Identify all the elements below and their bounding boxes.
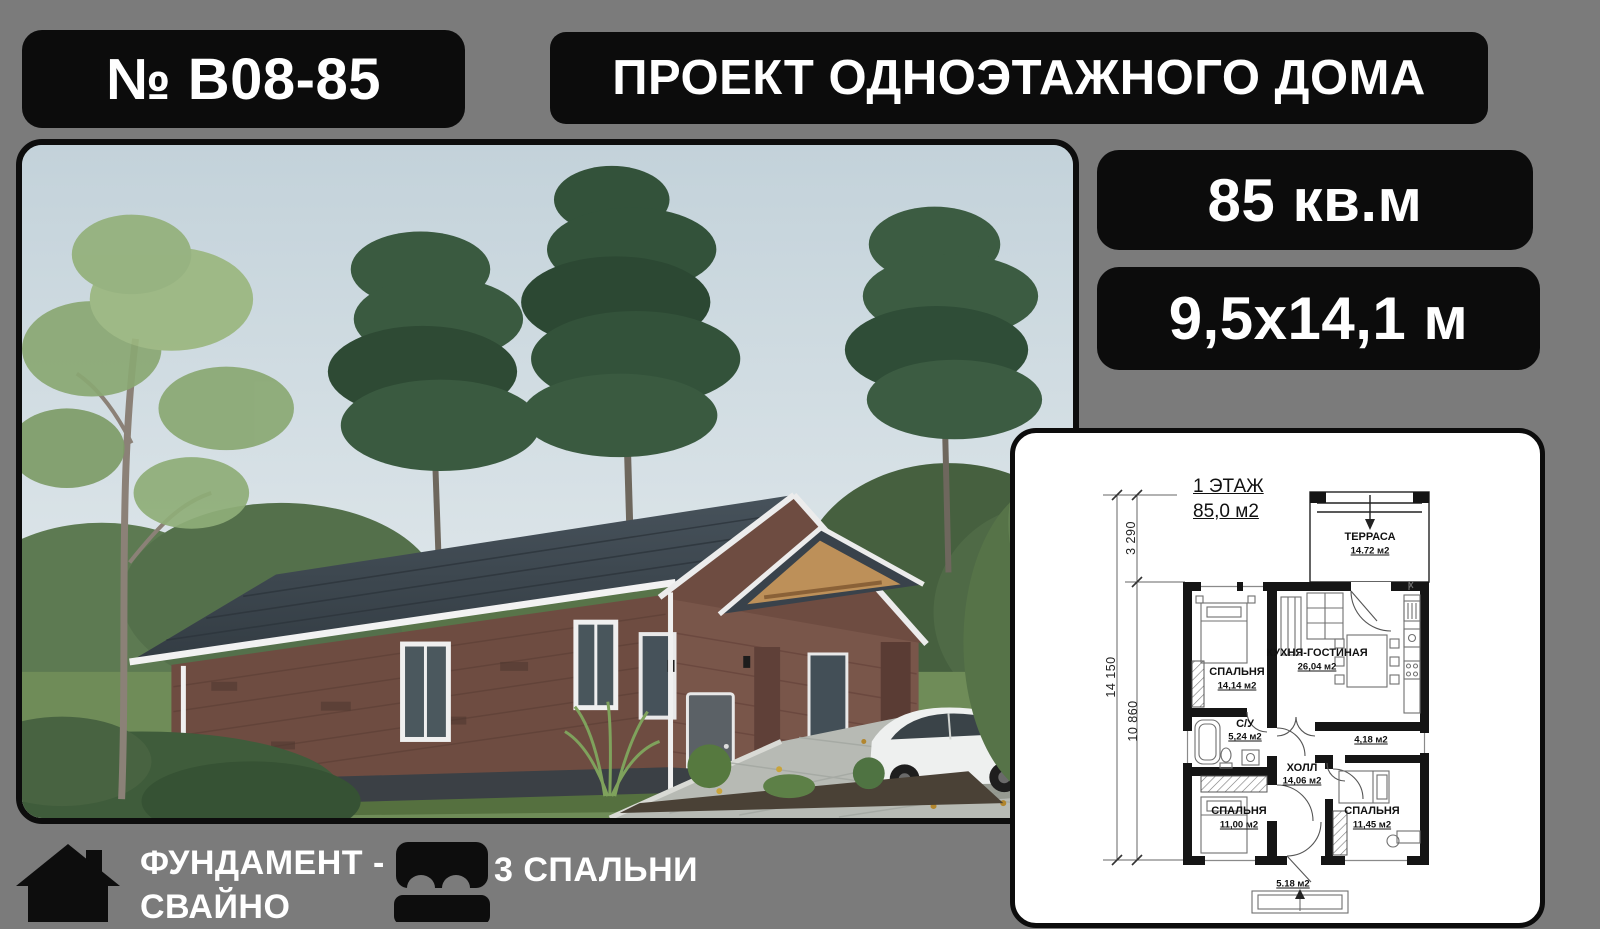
bed-icon	[394, 842, 494, 927]
room-bathroom-area: 5,24 м2	[1228, 732, 1261, 743]
dim-upper: 3 290	[1124, 521, 1138, 555]
house-icon	[16, 842, 122, 927]
dimensions-badge: 9,5x14,1 м	[1097, 267, 1540, 370]
bedrooms-feature: 3 СПАЛЬНИ	[494, 848, 698, 892]
room-bedroom3-name: СПАЛЬНЯ	[1344, 805, 1399, 817]
area-badge: 85 кв.м	[1097, 150, 1533, 250]
room-kitchen-name: КУХНЯ-ГОСТИНАЯ	[1266, 647, 1367, 659]
room-bedroom1-name: СПАЛЬНЯ	[1209, 666, 1264, 678]
poster-page: { "header": { "project_number": "№ B08-8…	[0, 0, 1600, 900]
room-bedroom2-area: 11,00 м2	[1220, 820, 1258, 831]
room-bedroom3-area: 11,45 м2	[1353, 820, 1391, 831]
room-hall-area: 14,06 м2	[1283, 776, 1322, 787]
plan-floor-label: 1 ЭТАЖ	[1193, 475, 1264, 500]
poster-title-badge: ПРОЕКТ ОДНОЭТАЖНОГО ДОМА	[550, 32, 1488, 124]
floor-plan-card: 1 ЭТАЖ 85,0 м2 3 290 14 150 10 860 ТЕРРА…	[1010, 428, 1545, 928]
room-hall-name: ХОЛЛ	[1287, 762, 1318, 774]
room-storage-area: 4,18 м2	[1354, 735, 1387, 746]
house-render-illustration	[22, 145, 1073, 818]
plan-total-area: 85,0 м2	[1193, 500, 1264, 525]
dim-total: 14 150	[1104, 656, 1118, 697]
room-bedroom1-area: 14,14 м2	[1218, 681, 1257, 692]
bedrooms-label: 3 СПАЛЬНИ	[494, 851, 698, 889]
plan-title-block: 1 ЭТАЖ 85,0 м2	[1193, 475, 1264, 524]
foundation-label-line1: ФУНДАМЕНТ -	[140, 841, 385, 885]
foundation-feature: ФУНДАМЕНТ - СВАЙНО	[140, 841, 385, 929]
foundation-label-line2: СВАЙНО	[140, 885, 385, 929]
room-bathroom-name: С/У	[1236, 718, 1254, 730]
project-number-badge: № B08-85	[22, 30, 465, 128]
room-porch-area: 5.18 м2	[1276, 879, 1309, 890]
room-kitchen-area: 26,04 м2	[1298, 662, 1337, 673]
floor-plan-drawing	[1015, 433, 1545, 928]
house-photo	[16, 139, 1079, 824]
room-bedroom2-name: СПАЛЬНЯ	[1211, 805, 1266, 817]
room-terrace-area: 14.72 м2	[1351, 546, 1390, 557]
dim-lower: 10 860	[1126, 700, 1140, 741]
room-terrace-name: ТЕРРАСА	[1344, 531, 1395, 543]
